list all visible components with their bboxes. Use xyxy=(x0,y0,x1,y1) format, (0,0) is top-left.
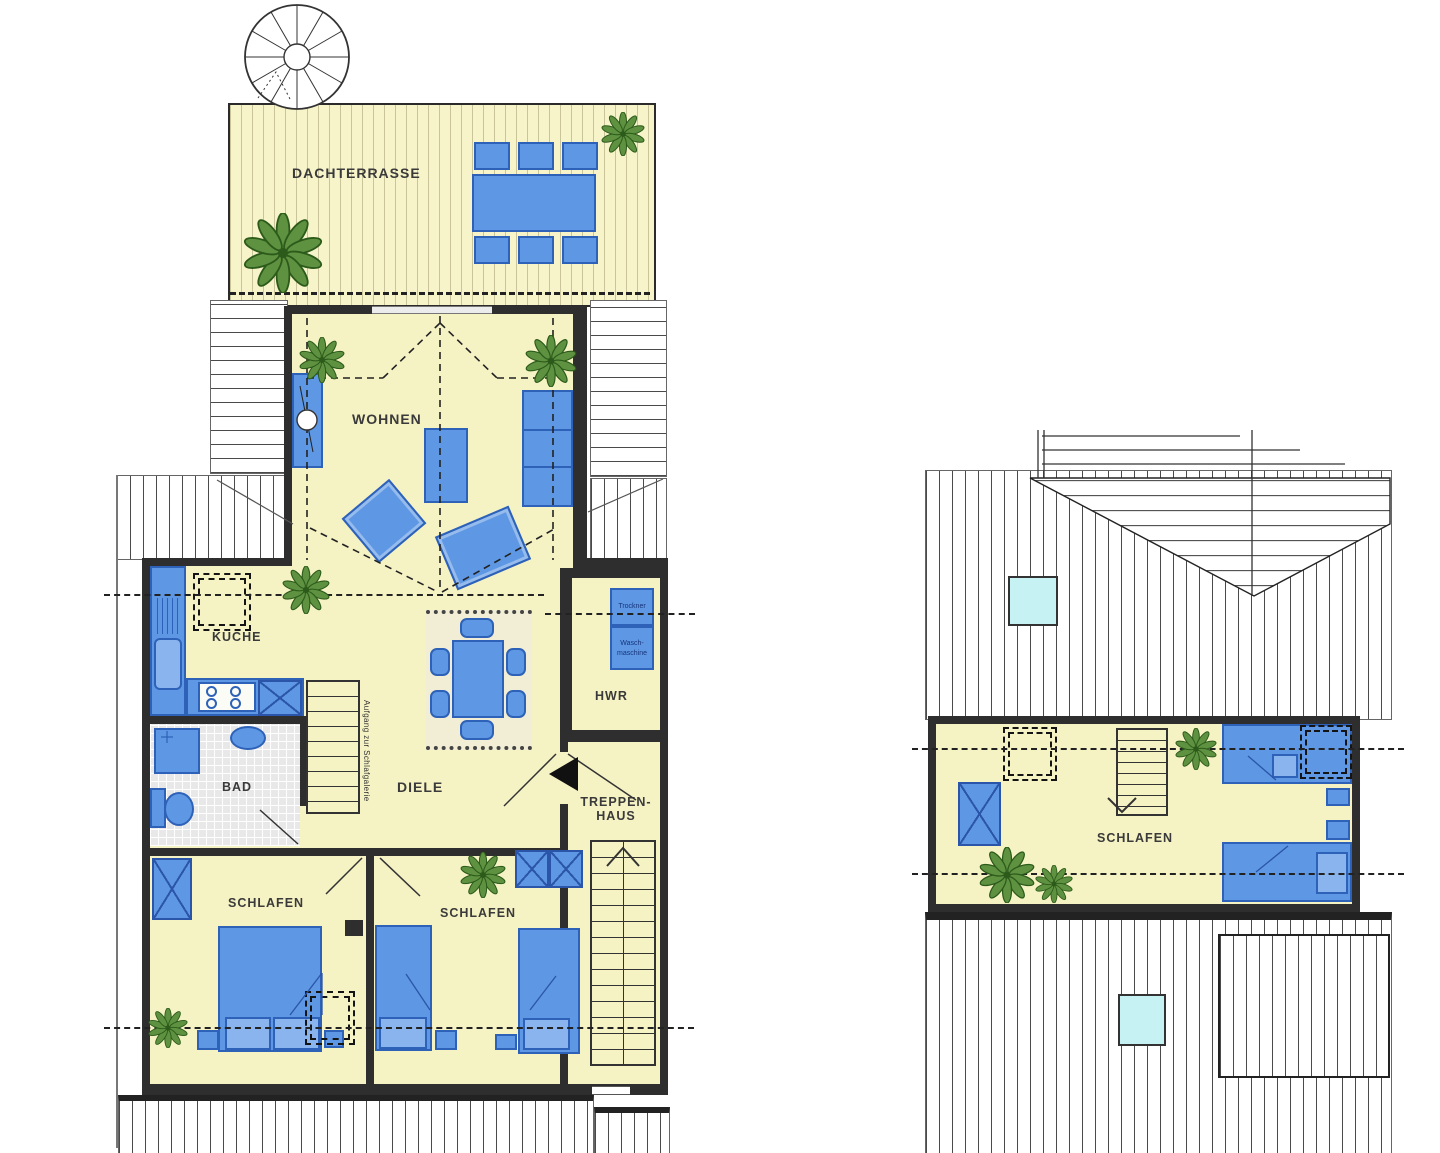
room-label-bad: BAD xyxy=(222,780,252,794)
roof-hatch-left-upper xyxy=(210,300,288,474)
roof-skylight-top xyxy=(1008,576,1058,626)
dining-chair xyxy=(460,618,494,638)
dryer: Trockner xyxy=(610,588,654,626)
dining-chair xyxy=(460,720,494,740)
kitchen-sink xyxy=(154,638,182,690)
stove-burner xyxy=(206,686,217,697)
room-label-schlafen-right: SCHLAFEN xyxy=(440,906,516,920)
wall-bad-top xyxy=(142,716,308,724)
wardrobe xyxy=(515,850,549,888)
terrace-chair xyxy=(474,142,510,170)
nightstand xyxy=(197,1030,219,1050)
nightstand xyxy=(495,1034,517,1050)
roof-hatch-bottom xyxy=(118,1095,594,1153)
bath-sink xyxy=(230,726,266,750)
gallery-stairs-note: Aufgang zur Schlafgalerie xyxy=(362,700,371,810)
wardrobe xyxy=(549,850,583,888)
terrace-chair xyxy=(562,142,598,170)
section-dashed-line xyxy=(912,748,1404,750)
kitchen-drainboard xyxy=(157,598,179,634)
wall-pier xyxy=(345,920,363,936)
sofa xyxy=(522,390,573,507)
washer-label-line2: maschine xyxy=(612,650,652,658)
stove-burner xyxy=(230,698,241,709)
bed-pillow xyxy=(379,1017,427,1049)
section-dashed-line xyxy=(104,594,544,596)
roof-plane-overlay xyxy=(1218,934,1390,1078)
dining-chair xyxy=(506,690,526,718)
terrace-chair xyxy=(518,236,554,264)
roof-skylight-bottom xyxy=(1118,994,1166,1046)
treppenhaus-label-line1: TREPPEN- xyxy=(578,795,654,809)
room-label-diele: DIELE xyxy=(397,779,443,795)
bed-pillow xyxy=(523,1018,570,1050)
nightstand xyxy=(1326,788,1350,806)
treppenhaus-label-line2: HAUS xyxy=(578,809,654,823)
section-dashed-line xyxy=(912,873,1404,875)
dining-chair xyxy=(430,690,450,718)
skylight-schlafen-left xyxy=(310,996,350,1040)
eaves-line-left xyxy=(116,475,118,1148)
room-label-treppenhaus: TREPPEN- HAUS xyxy=(578,795,654,823)
roof-hatch-right-upper xyxy=(590,300,667,477)
terrace-threshold-dashed-line xyxy=(230,292,650,295)
washing-machine: Wasch- maschine xyxy=(610,626,654,670)
roof-hatch-bottom-right xyxy=(594,1107,670,1153)
skylight-kueche xyxy=(198,578,246,626)
nightstand xyxy=(1326,820,1350,840)
gallery-access-stairs xyxy=(306,680,360,814)
room-label-wohnen: WOHNEN xyxy=(352,411,422,427)
room-label-hwr: HWR xyxy=(595,689,628,703)
terrace-chair xyxy=(562,236,598,264)
section-dashed-line xyxy=(545,613,695,615)
room-label-schlafen-left: SCHLAFEN xyxy=(228,896,304,910)
terrace-chair xyxy=(518,142,554,170)
shower xyxy=(154,728,200,774)
gallery-stairs xyxy=(1116,728,1168,816)
skylight-gallery-bed xyxy=(1305,730,1347,774)
terrace-chair xyxy=(474,236,510,264)
dryer-label: Trockner xyxy=(612,603,652,611)
kitchen-appliance xyxy=(258,680,302,716)
coffee-table xyxy=(424,428,468,503)
stove-burner xyxy=(230,686,241,697)
terrace-table xyxy=(472,174,596,232)
plan-upper-floor: DACHTERRASSE xyxy=(0,0,720,1153)
room-label-gallery-schlafen: SCHLAFEN xyxy=(1097,831,1173,845)
roof-hatch-left-lower xyxy=(116,475,290,560)
bed-pillow xyxy=(1272,754,1298,778)
sofa-cushion-line xyxy=(524,429,571,431)
terrace-door-slot xyxy=(372,306,492,314)
stove xyxy=(198,682,256,712)
stairwell-stairs xyxy=(590,840,656,1066)
doorway-diele-treppenhaus xyxy=(556,752,572,804)
sofa-cushion-line xyxy=(524,466,571,468)
room-label-dachterrasse: DACHTERRASSE xyxy=(292,165,421,181)
bed-pillow xyxy=(225,1017,271,1050)
stairwell-window-slot xyxy=(592,1086,630,1095)
floorplan-canvas: DACHTERRASSE xyxy=(0,0,1440,1153)
sideboard xyxy=(292,373,323,468)
wardrobe xyxy=(152,858,192,920)
section-dashed-line xyxy=(104,1027,694,1029)
room-label-kueche: KÜCHE xyxy=(212,630,261,644)
stove-burner xyxy=(206,698,217,709)
dining-chair xyxy=(506,648,526,676)
dining-table xyxy=(452,640,504,718)
roof-hatch-gallery-top xyxy=(925,470,1392,720)
dining-chair xyxy=(430,648,450,676)
washer-label-line1: Wasch- xyxy=(612,640,652,648)
plan-gallery-floor: SCHLAFEN xyxy=(720,0,1440,1153)
skylight-gallery xyxy=(1008,732,1052,776)
wardrobe xyxy=(958,782,1001,846)
nightstand xyxy=(435,1030,457,1050)
toilet-bowl xyxy=(164,792,194,826)
